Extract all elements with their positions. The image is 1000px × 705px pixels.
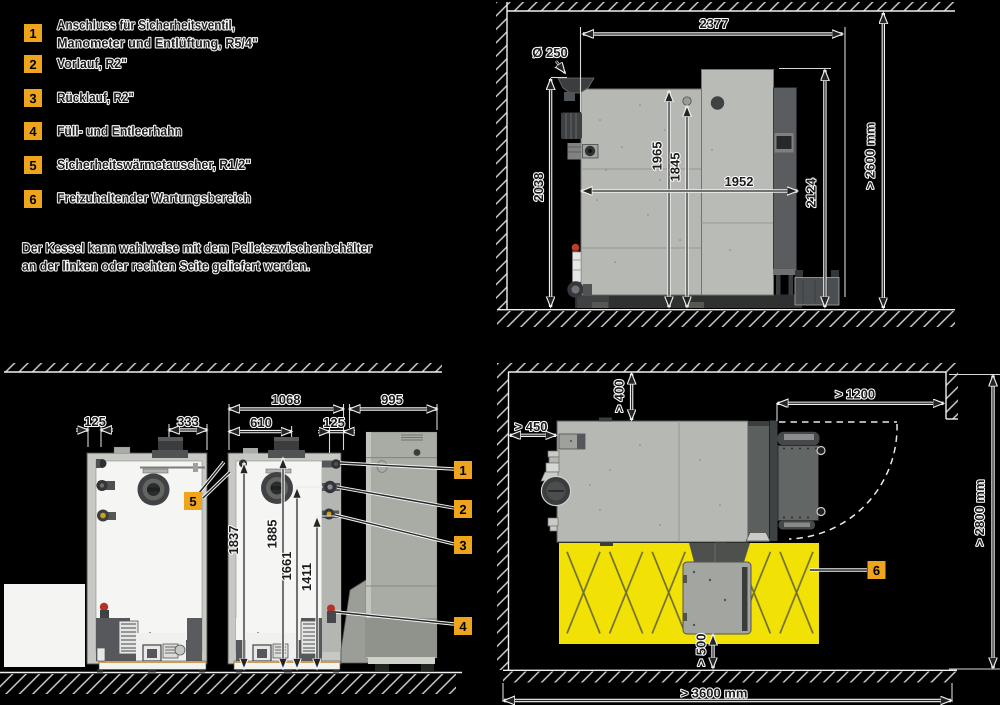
svg-text:2377: 2377: [700, 16, 729, 31]
svg-text:1837: 1837: [226, 526, 241, 555]
svg-text:> 2800 mm: > 2800 mm: [972, 480, 987, 547]
svg-text:> 400: > 400: [612, 380, 627, 413]
svg-text:2038: 2038: [531, 173, 546, 202]
svg-text:> 1200: > 1200: [835, 387, 875, 402]
svg-text:1: 1: [29, 26, 36, 41]
svg-text:Der Kessel kann wahlweise mit: Der Kessel kann wahlweise mit dem Pellet…: [22, 241, 373, 256]
svg-text:1: 1: [459, 463, 466, 478]
svg-text:Manometer und Entlüftung, R5/4: Manometer und Entlüftung, R5/4": [57, 36, 258, 51]
svg-text:> 2600 mm: > 2600 mm: [863, 123, 878, 190]
svg-text:1411: 1411: [299, 563, 314, 591]
svg-text:1885: 1885: [265, 520, 280, 549]
svg-text:> 500: > 500: [694, 634, 709, 667]
svg-text:> 450: > 450: [515, 419, 548, 434]
svg-text:5: 5: [29, 158, 36, 173]
svg-text:> 3600 mm: > 3600 mm: [681, 686, 748, 701]
svg-text:Sicherheitswärmetauscher, R1/2: Sicherheitswärmetauscher, R1/2": [57, 157, 251, 172]
svg-text:2: 2: [459, 502, 466, 517]
svg-text:Freizuhaltender Wartungsbereic: Freizuhaltender Wartungsbereich: [57, 191, 251, 206]
svg-text:1068: 1068: [272, 392, 301, 407]
svg-text:3: 3: [29, 91, 36, 106]
svg-text:125: 125: [323, 415, 345, 430]
svg-text:Anschluss für Sicherheitsventi: Anschluss für Sicherheitsventil,: [57, 18, 235, 33]
svg-text:3: 3: [459, 538, 466, 553]
svg-text:995: 995: [381, 392, 403, 407]
svg-text:6: 6: [873, 563, 880, 578]
svg-text:6: 6: [29, 192, 36, 207]
svg-text:1845: 1845: [668, 153, 683, 182]
svg-text:610: 610: [250, 415, 272, 430]
svg-text:Ø 250: Ø 250: [532, 45, 567, 60]
svg-text:333: 333: [177, 414, 199, 429]
svg-text:4: 4: [459, 619, 467, 634]
svg-text:1965: 1965: [650, 142, 665, 171]
svg-text:5: 5: [189, 494, 196, 509]
svg-text:4: 4: [29, 124, 37, 139]
svg-text:1952: 1952: [725, 174, 754, 189]
svg-text:1661: 1661: [279, 552, 294, 581]
svg-text:125: 125: [84, 414, 106, 429]
svg-text:2: 2: [29, 57, 36, 72]
svg-text:Rücklauf, R2": Rücklauf, R2": [57, 90, 134, 105]
svg-text:2124: 2124: [804, 178, 819, 208]
svg-text:Vorlauf, R2": Vorlauf, R2": [57, 56, 127, 71]
svg-text:an der linken oder rechten Sei: an der linken oder rechten Seite geliefe…: [22, 259, 310, 274]
svg-text:Füll- und Entleerhahn: Füll- und Entleerhahn: [57, 124, 182, 139]
